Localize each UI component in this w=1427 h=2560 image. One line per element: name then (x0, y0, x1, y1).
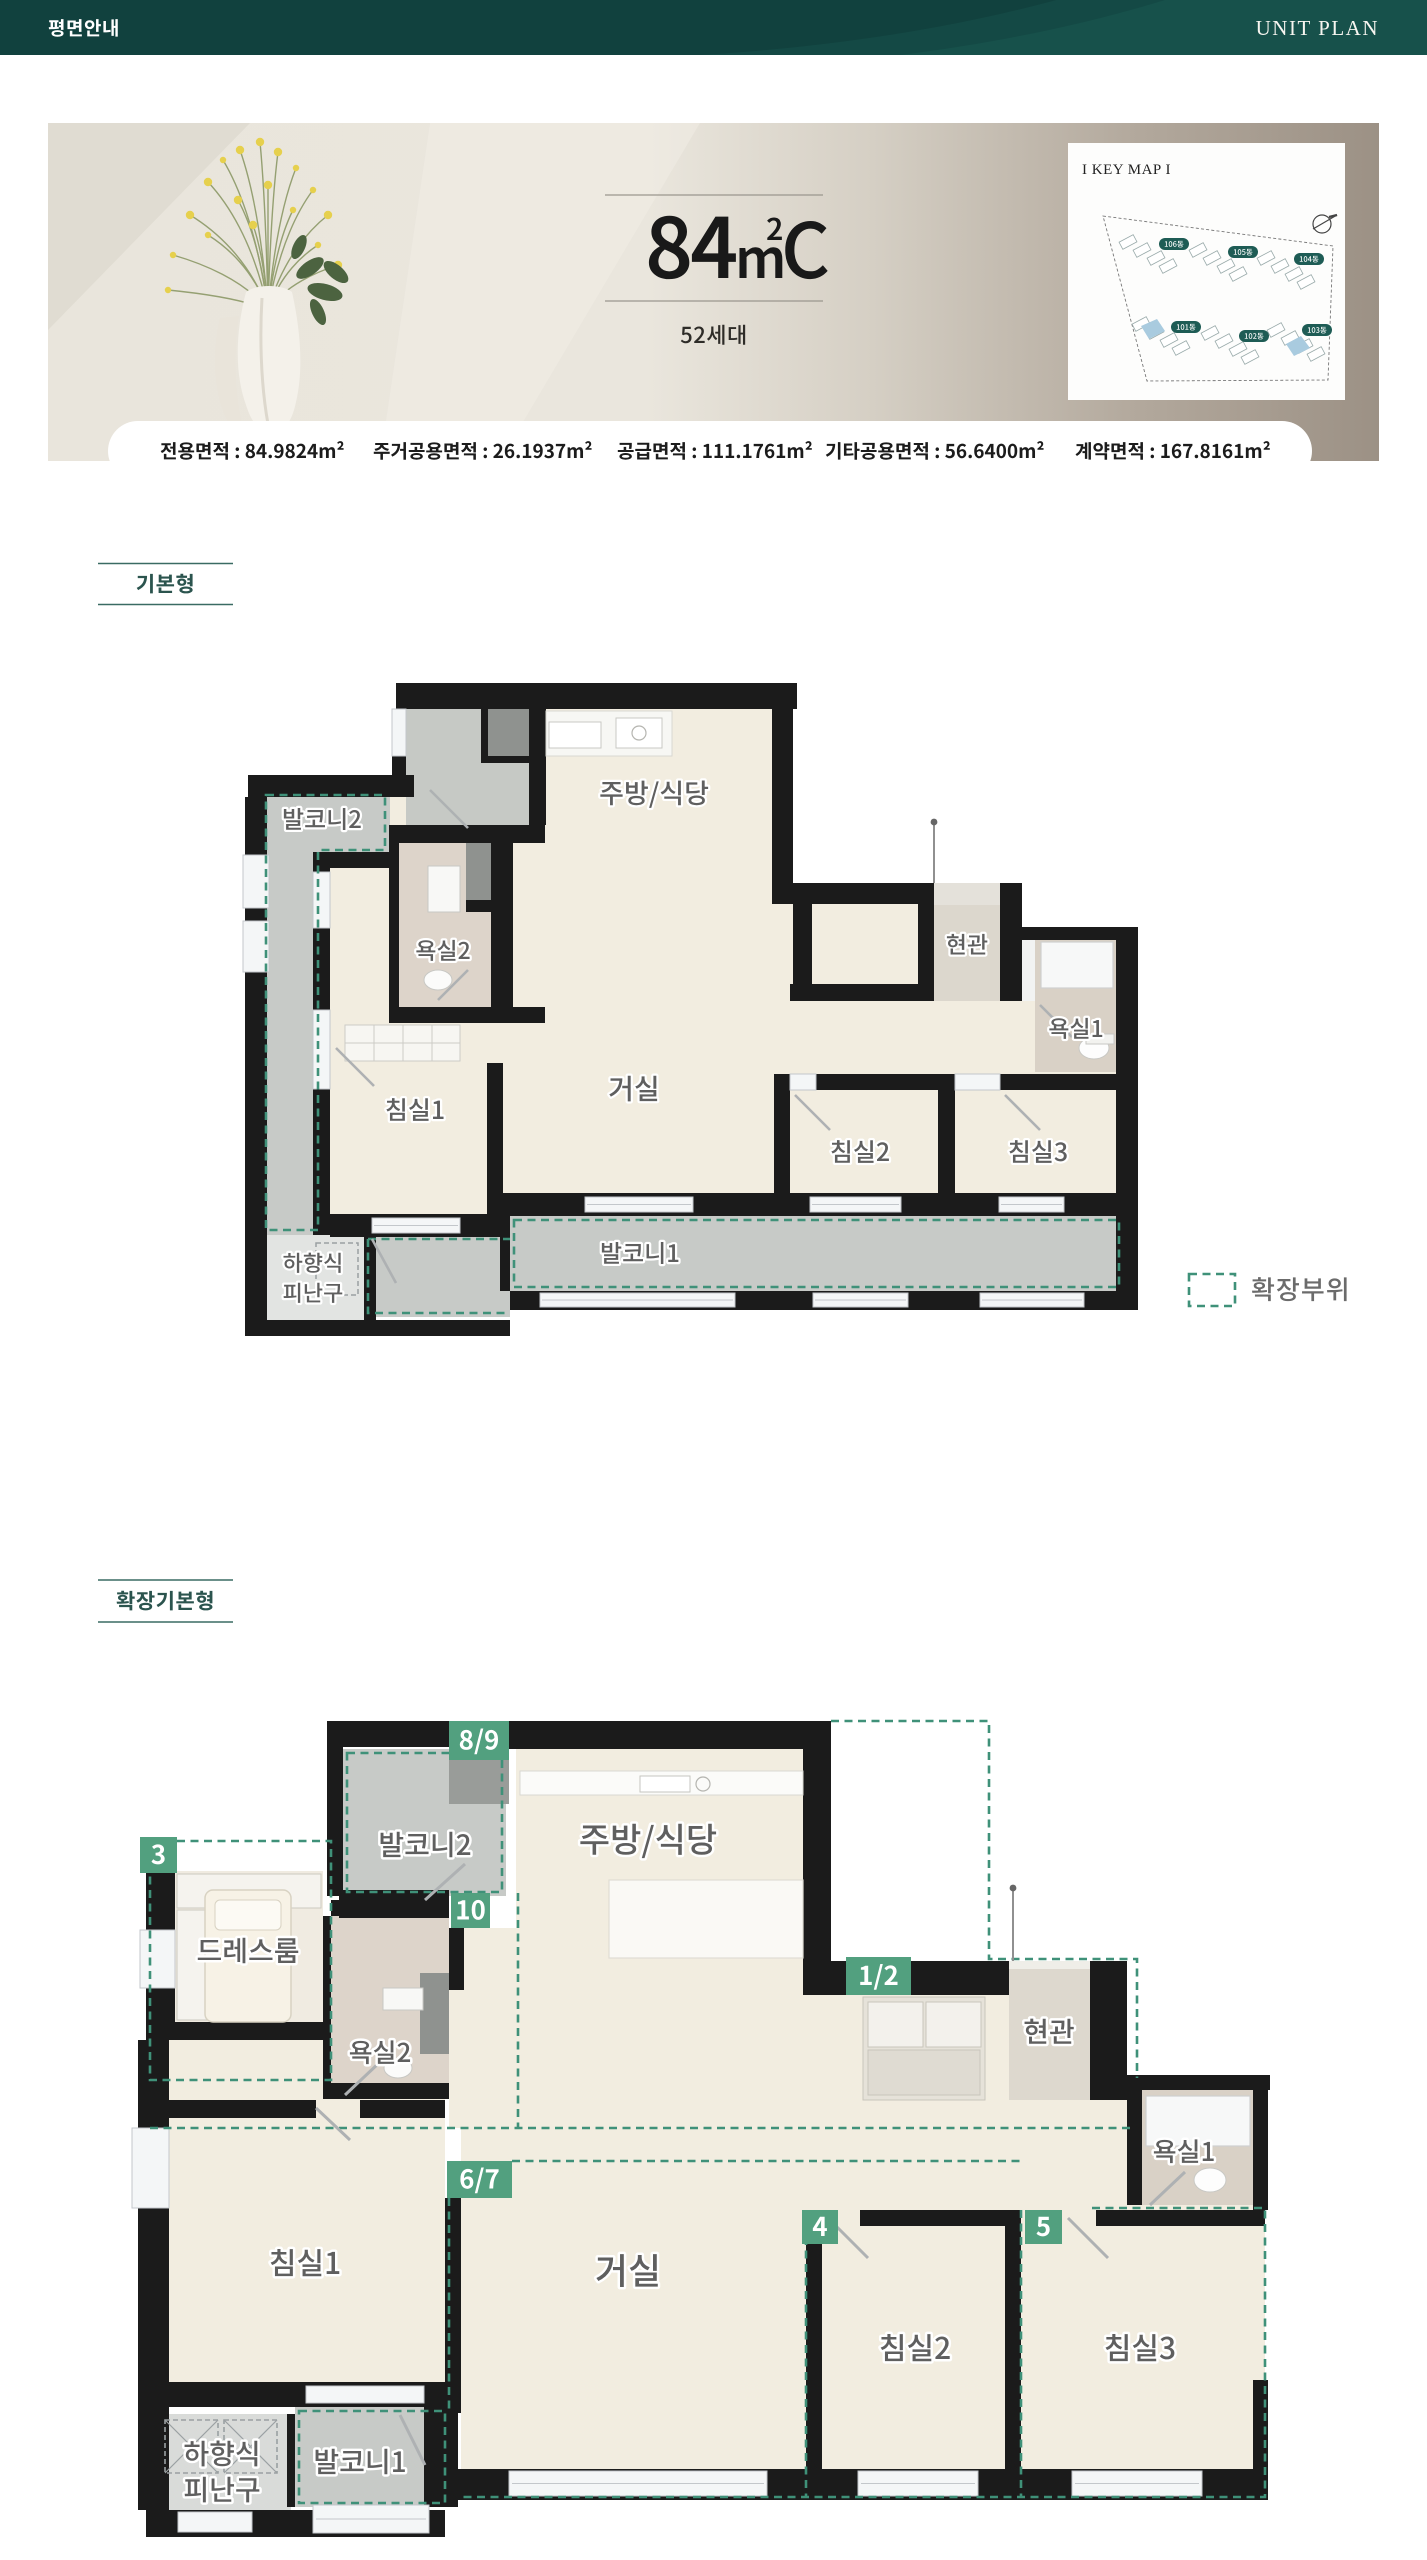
svg-text:UNIT PLAN: UNIT PLAN (1256, 16, 1379, 40)
svg-text:I KEY MAP I: I KEY MAP I (1082, 162, 1171, 178)
